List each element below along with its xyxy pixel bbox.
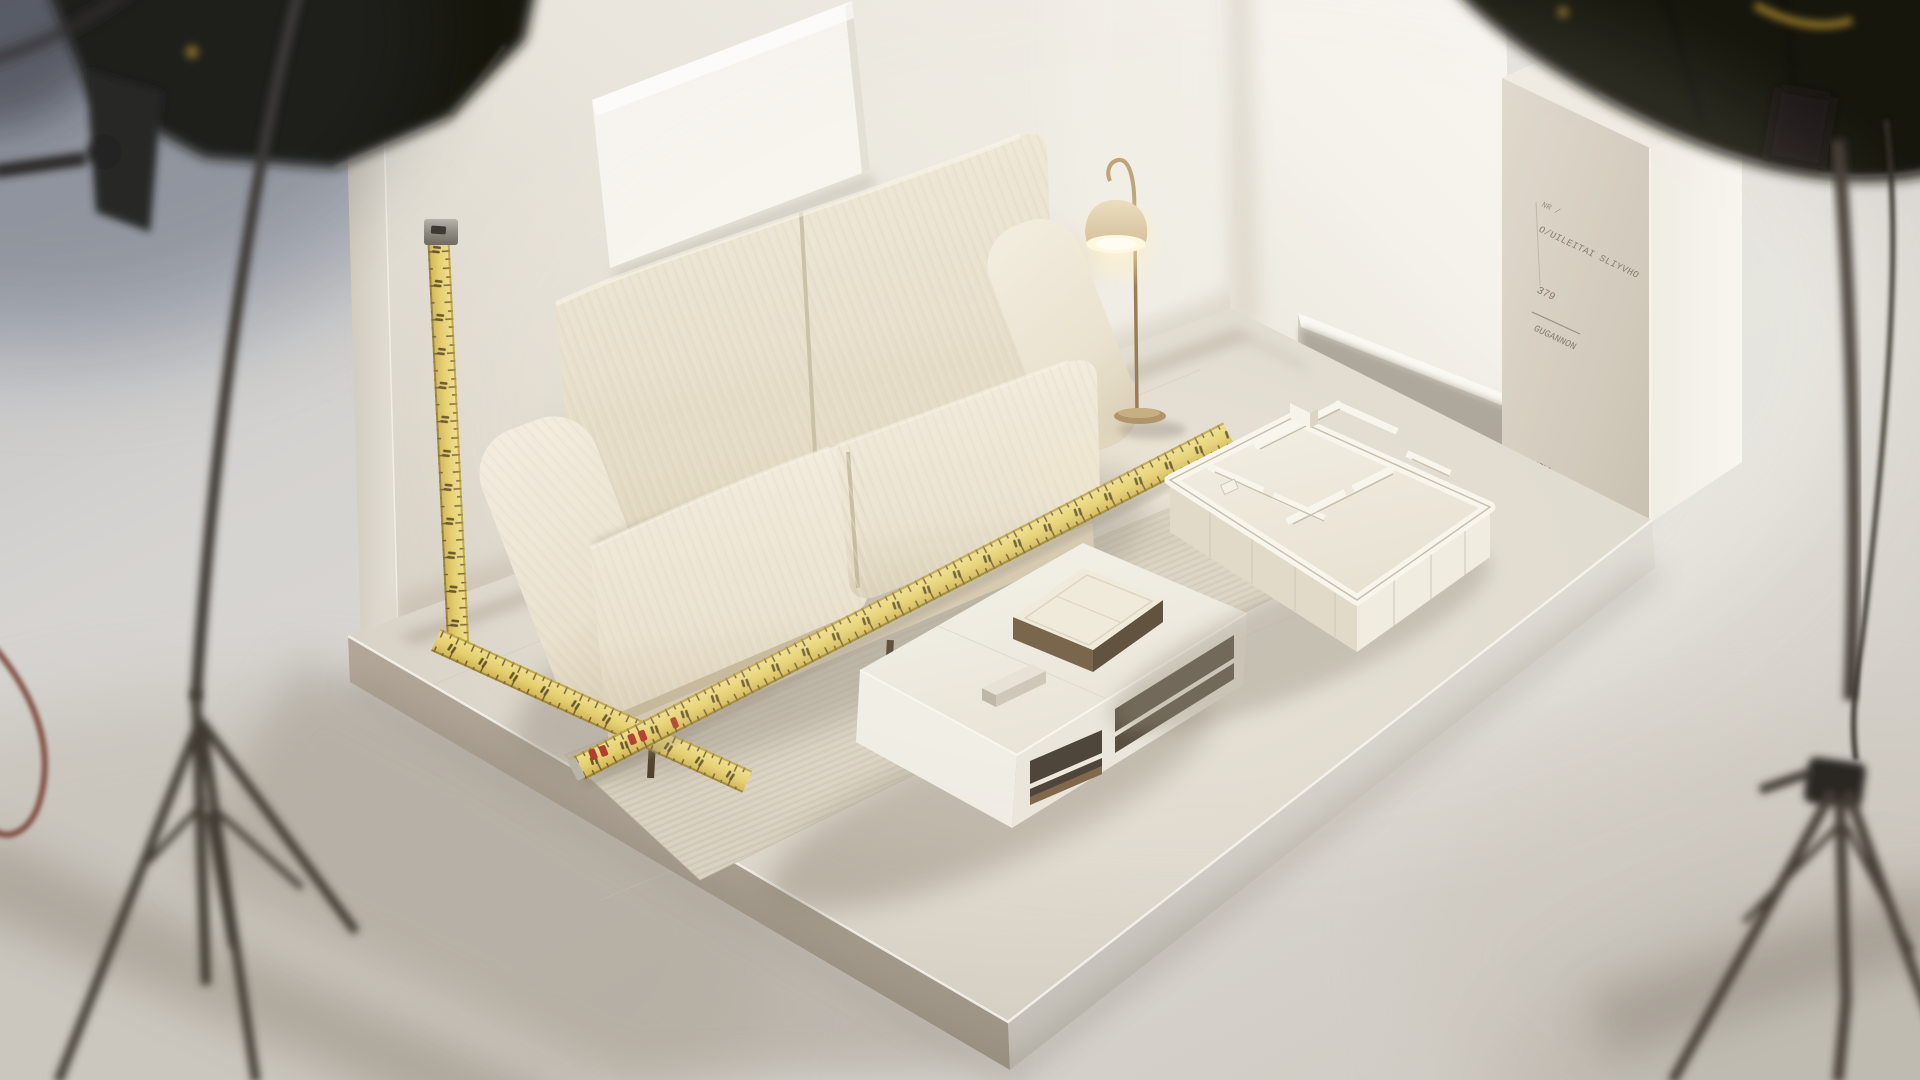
- tape-clip-slot: [431, 226, 447, 235]
- studio-scene: NR / O/UILEITAI SLIYVHO 379 GUGANNON VSW…: [0, 0, 1920, 1080]
- scene-canvas: NR / O/UILEITAI SLIYVHO 379 GUGANNON VSW…: [0, 0, 1920, 1080]
